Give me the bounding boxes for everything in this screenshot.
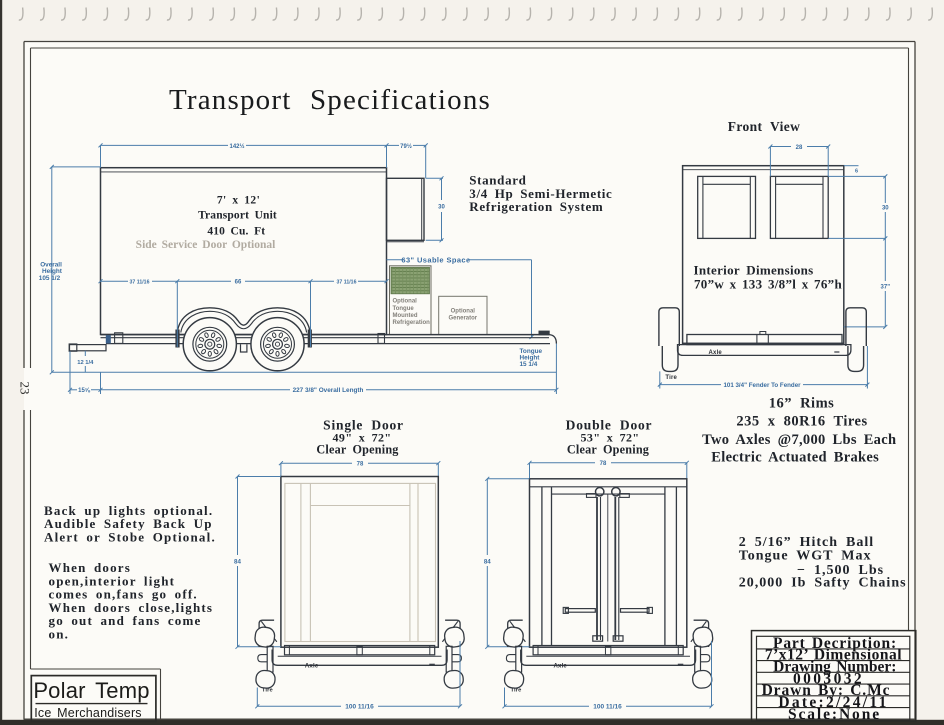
svg-text:Polar Temp: Polar Temp [33, 678, 149, 703]
svg-text:84: 84 [484, 558, 491, 565]
svg-text:30: 30 [438, 205, 445, 211]
svg-text:Mounted: Mounted [393, 313, 418, 319]
svg-text:Interior Dimensions: Interior Dimensions [694, 262, 814, 277]
svg-text:105 1/2: 105 1/2 [39, 275, 61, 282]
svg-text:Clear Opening: Clear Opening [567, 443, 649, 457]
svg-text:16” Rims: 16” Rims [769, 396, 835, 412]
svg-text:227 3/8" Overall Length: 227 3/8" Overall Length [293, 387, 364, 394]
svg-text:Transport Unit: Transport Unit [198, 210, 277, 222]
svg-text:63" Usable Space: 63" Usable Space [401, 255, 470, 264]
svg-text:410 Cu. Ft: 410 Cu. Ft [207, 226, 265, 238]
svg-text:Axle: Axle [554, 664, 568, 670]
svg-text:Tongue WGT Max: Tongue WGT Max [739, 549, 872, 564]
svg-text:30: 30 [882, 205, 889, 211]
svg-text:100 11/16: 100 11/16 [345, 704, 374, 711]
svg-text:Refrigeration: Refrigeration [393, 320, 431, 326]
svg-text:66: 66 [235, 280, 242, 286]
svg-text:Tire: Tire [665, 375, 677, 381]
svg-text:Optional: Optional [451, 309, 476, 315]
svg-text:20,000 Ib Safty Chains: 20,000 Ib Safty Chains [739, 576, 907, 591]
svg-text:Generator: Generator [448, 316, 477, 322]
svg-text:Scale:None: Scale:None [788, 706, 881, 723]
svg-text:23: 23 [18, 382, 33, 395]
svg-text:on.: on. [49, 627, 70, 642]
svg-text:142½: 142½ [229, 143, 244, 150]
svg-text:84: 84 [234, 558, 241, 565]
svg-text:12 1/4: 12 1/4 [77, 360, 94, 366]
svg-text:37": 37" [881, 284, 891, 290]
svg-text:78: 78 [600, 461, 607, 467]
svg-text:7' x 12': 7' x 12' [217, 194, 260, 206]
svg-text:Optional: Optional [393, 299, 418, 305]
svg-text:28: 28 [796, 145, 803, 151]
svg-text:37 11/16: 37 11/16 [130, 279, 150, 285]
svg-text:Axle: Axle [305, 664, 319, 670]
svg-text:235 x 80R16 Tires: 235 x 80R16 Tires [736, 414, 867, 430]
svg-text:Transport Specifications: Transport Specifications [169, 84, 491, 116]
svg-text:Alert or Stobe Optional.: Alert or Stobe Optional. [44, 529, 216, 544]
svg-text:101 3/4" Fender To Fender: 101 3/4" Fender To Fender [723, 382, 801, 389]
svg-text:79½: 79½ [400, 143, 412, 150]
svg-text:Tongue: Tongue [393, 306, 415, 312]
svg-text:Clear Opening: Clear Opening [316, 443, 398, 457]
svg-text:100 11/16: 100 11/16 [593, 704, 622, 711]
svg-text:6: 6 [855, 168, 858, 174]
svg-text:Ice Merchandisers: Ice Merchandisers [34, 706, 142, 720]
svg-text:Two Axles @7,000 Lbs Each: Two Axles @7,000 Lbs Each [702, 432, 896, 448]
svg-text:Tire: Tire [262, 688, 274, 694]
svg-text:15⅝: 15⅝ [78, 388, 91, 394]
svg-text:78: 78 [357, 462, 364, 468]
svg-text:Tire: Tire [511, 688, 523, 694]
svg-text:37 11/16: 37 11/16 [337, 279, 357, 285]
svg-text:70”w x 133 3/8”l x 76”h: 70”w x 133 3/8”l x 76”h [694, 277, 842, 292]
svg-text:Refrigeration System: Refrigeration System [469, 199, 603, 214]
svg-text:Axle: Axle [709, 350, 723, 356]
svg-text:go out and fans come: go out and fans come [49, 613, 202, 628]
svg-text:Side Service Door Optional: Side Service Door Optional [136, 239, 276, 251]
svg-text:15 1/4: 15 1/4 [520, 361, 538, 368]
svg-text:Electric Actuated Brakes: Electric Actuated Brakes [711, 450, 879, 466]
svg-text:Front View: Front View [728, 119, 801, 134]
